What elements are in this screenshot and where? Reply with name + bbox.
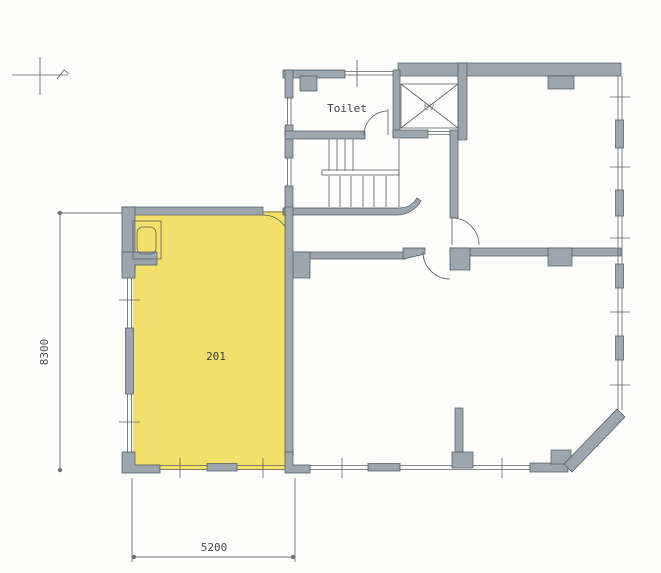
column-block	[300, 76, 317, 91]
floor-plan-drawing: 8300 5200 Toilet EV 201	[0, 0, 661, 573]
window-mullion	[616, 120, 624, 148]
column-block	[285, 452, 310, 473]
dimension-left: 8300	[38, 211, 122, 472]
bottom-right-walls	[310, 408, 625, 478]
elevator-label: EV	[424, 103, 435, 113]
wall-stub-foot	[452, 452, 473, 468]
top-exterior-wall	[345, 60, 621, 89]
column-block	[450, 248, 470, 270]
stair-handrail	[322, 170, 399, 175]
window-mullion	[207, 464, 237, 472]
column-block	[548, 76, 574, 89]
upper-right-room-wall	[450, 130, 479, 245]
door-swing	[452, 218, 479, 245]
door-swing	[423, 252, 450, 279]
chamfer-corner-wall	[564, 409, 625, 472]
stair-corridor-wall	[283, 198, 421, 215]
dimension-bottom-value: 5200	[201, 541, 228, 554]
window-mullion	[126, 328, 134, 394]
floor-plan-page: 8300 5200 Toilet EV 201	[0, 0, 661, 573]
window-mullion	[368, 464, 400, 472]
dimension-bottom: 5200	[132, 478, 295, 562]
column-block	[548, 248, 572, 266]
room-201-highlight	[133, 211, 288, 470]
toilet-door-swing	[364, 111, 388, 135]
staircase	[322, 139, 399, 207]
toilet-room-walls	[283, 70, 388, 211]
window-mullion	[616, 190, 624, 216]
right-exterior-wall	[610, 76, 630, 410]
dimension-left-value: 8300	[38, 339, 51, 366]
room-201-label: 201	[206, 350, 226, 363]
window-mullion	[616, 336, 624, 360]
survey-cross-marker	[12, 57, 69, 95]
window-mullion	[616, 264, 624, 288]
toilet-label: Toilet	[327, 102, 367, 115]
wall-stub	[455, 408, 463, 458]
